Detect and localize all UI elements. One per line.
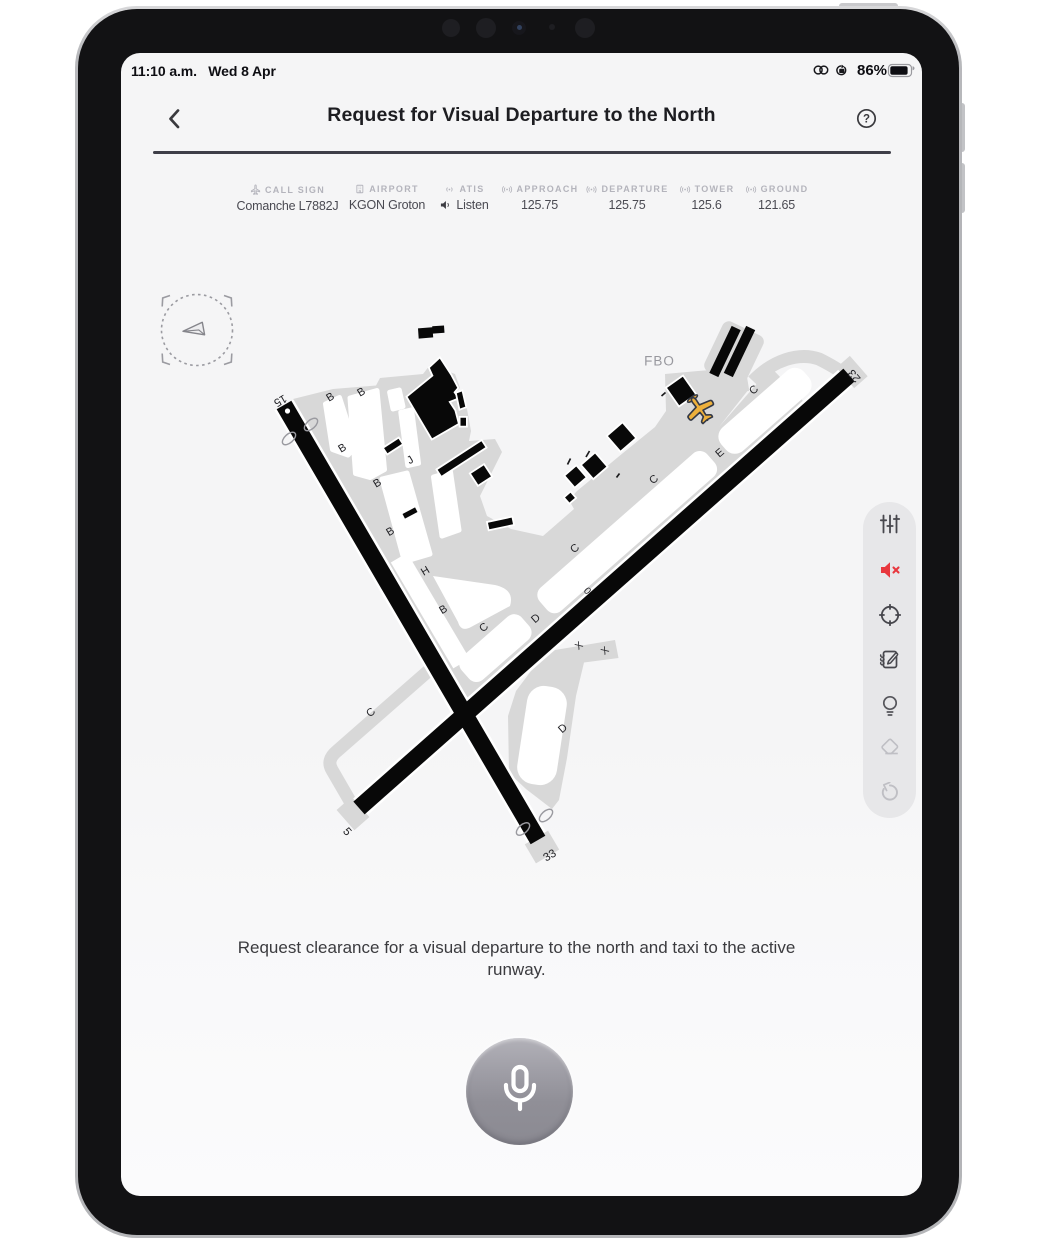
svg-text:FBO: FBO: [644, 354, 675, 369]
svg-text:5: 5: [340, 826, 353, 839]
